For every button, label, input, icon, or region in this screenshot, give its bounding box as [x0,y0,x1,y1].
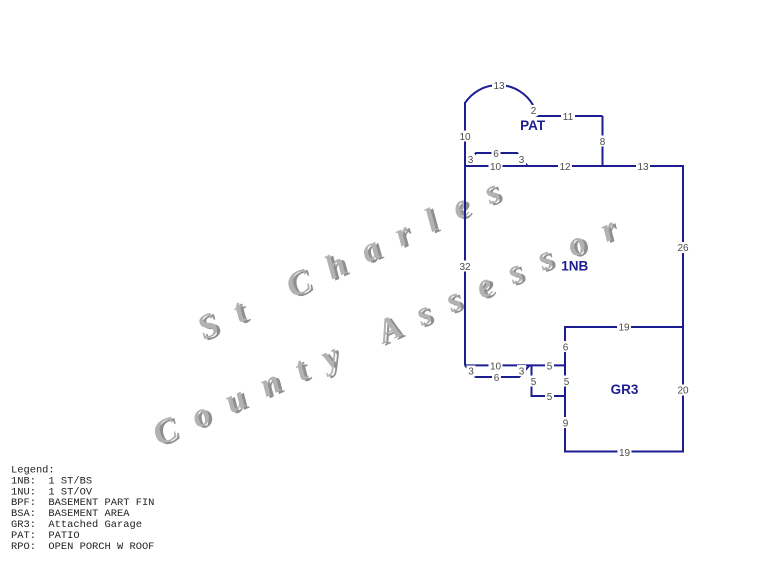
svg-text:RPO: OPEN PORCH W ROOF: RPO: OPEN PORCH W ROOF [11,541,154,553]
svg-text:2: 2 [531,106,537,117]
svg-text:6: 6 [493,149,499,160]
svg-text:PAT: PAT [520,118,546,133]
svg-text:13: 13 [637,162,649,173]
svg-text:3: 3 [519,155,525,166]
svg-text:12: 12 [559,162,571,173]
svg-text:St Charles: St Charles [192,173,506,347]
svg-text:10: 10 [490,162,502,173]
svg-text:5: 5 [531,377,537,388]
svg-text:19: 19 [619,448,631,459]
svg-text:13: 13 [493,81,505,92]
svg-text:11: 11 [563,112,574,123]
svg-text:GR3: GR3 [611,382,639,397]
svg-text:9: 9 [563,419,569,430]
svg-text:5: 5 [547,392,553,403]
svg-text:19: 19 [618,323,630,334]
svg-text:26: 26 [677,243,689,254]
svg-text:3: 3 [468,155,474,166]
svg-text:3: 3 [519,367,525,378]
svg-text:20: 20 [677,386,689,397]
svg-text:6: 6 [494,373,500,384]
svg-text:8: 8 [600,137,606,148]
svg-text:10: 10 [459,132,471,143]
svg-text:10: 10 [490,362,502,373]
svg-text:5: 5 [564,377,570,388]
svg-text:1NB: 1NB [561,259,588,274]
svg-text:6: 6 [563,343,569,354]
svg-text:3: 3 [468,367,474,378]
svg-text:5: 5 [547,362,553,373]
svg-text:32: 32 [459,262,471,273]
